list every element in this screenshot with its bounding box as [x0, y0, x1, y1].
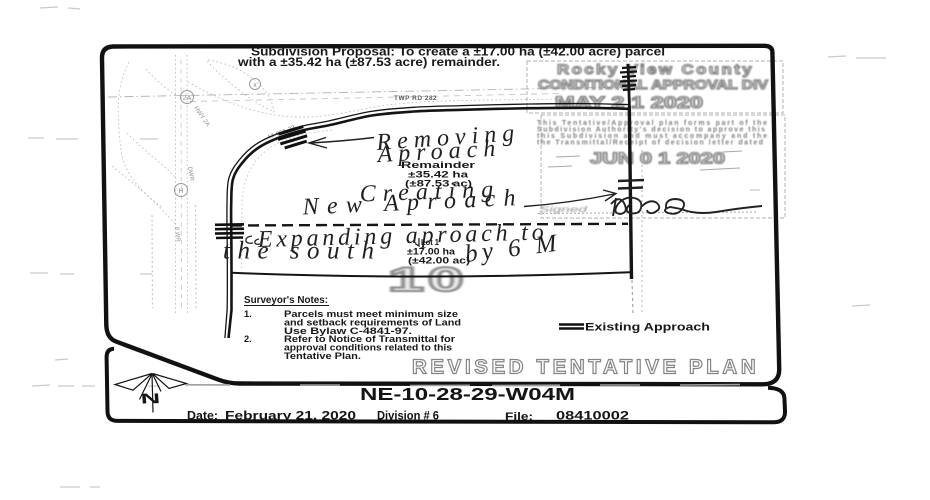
svg-text:08410002: 08410002 — [556, 411, 629, 423]
svg-text:Date:: Date: — [187, 409, 218, 423]
svg-text:Rocky View County: Rocky View County — [557, 61, 754, 77]
svg-text:DWR: DWR — [186, 166, 195, 182]
svg-text:2A: 2A — [183, 95, 192, 102]
svg-text:N: N — [140, 390, 161, 407]
svg-text:Surveyor's Notes:: Surveyor's Notes: — [244, 295, 328, 306]
svg-text:Division # 6: Division # 6 — [377, 411, 439, 423]
svg-text:10: 10 — [388, 260, 467, 298]
svg-text:Aproach: Aproach — [375, 136, 502, 169]
svg-text:1.: 1. — [244, 309, 252, 319]
svg-text:with a ±35.42 ha (±87.53 acre): with a ±35.42 ha (±87.53 acre) remainder… — [237, 57, 500, 69]
svg-text:CONDITIONAL APPROVAL DIV: CONDITIONAL APPROVAL DIV — [538, 78, 769, 92]
svg-text:Tentative Plan.: Tentative Plan. — [284, 351, 361, 361]
svg-text:x: x — [253, 82, 257, 89]
svg-text:8 WR: 8 WR — [173, 227, 181, 243]
svg-text:(±42.00 ac): (±42.00 ac) — [408, 256, 470, 266]
svg-text:February 21, 2020: February 21, 2020 — [225, 409, 356, 423]
svg-text:Signed: Signed — [539, 204, 587, 214]
svg-text:H: H — [178, 188, 183, 195]
svg-text:the Transmittal/Receipt of dec: the Transmittal/Receipt of decision lett… — [537, 140, 763, 147]
svg-text:NE-10-28-29-W04M: NE-10-28-29-W04M — [360, 384, 575, 404]
svg-text:TWP RD 282: TWP RD 282 — [394, 95, 437, 102]
svg-text:New Aproach: New Aproach — [301, 185, 524, 221]
svg-text:JUN 0 1 2020: JUN 0 1 2020 — [590, 151, 725, 168]
svg-text:HWY 2A: HWY 2A — [192, 106, 210, 128]
svg-text:REVISED TENTATIVE PLAN: REVISED TENTATIVE PLAN — [412, 356, 759, 379]
svg-text:2.: 2. — [244, 334, 252, 344]
svg-text:the south: the south — [223, 238, 381, 265]
svg-text:File:: File: — [505, 411, 533, 423]
svg-text:Existing Approach: Existing Approach — [585, 322, 710, 334]
